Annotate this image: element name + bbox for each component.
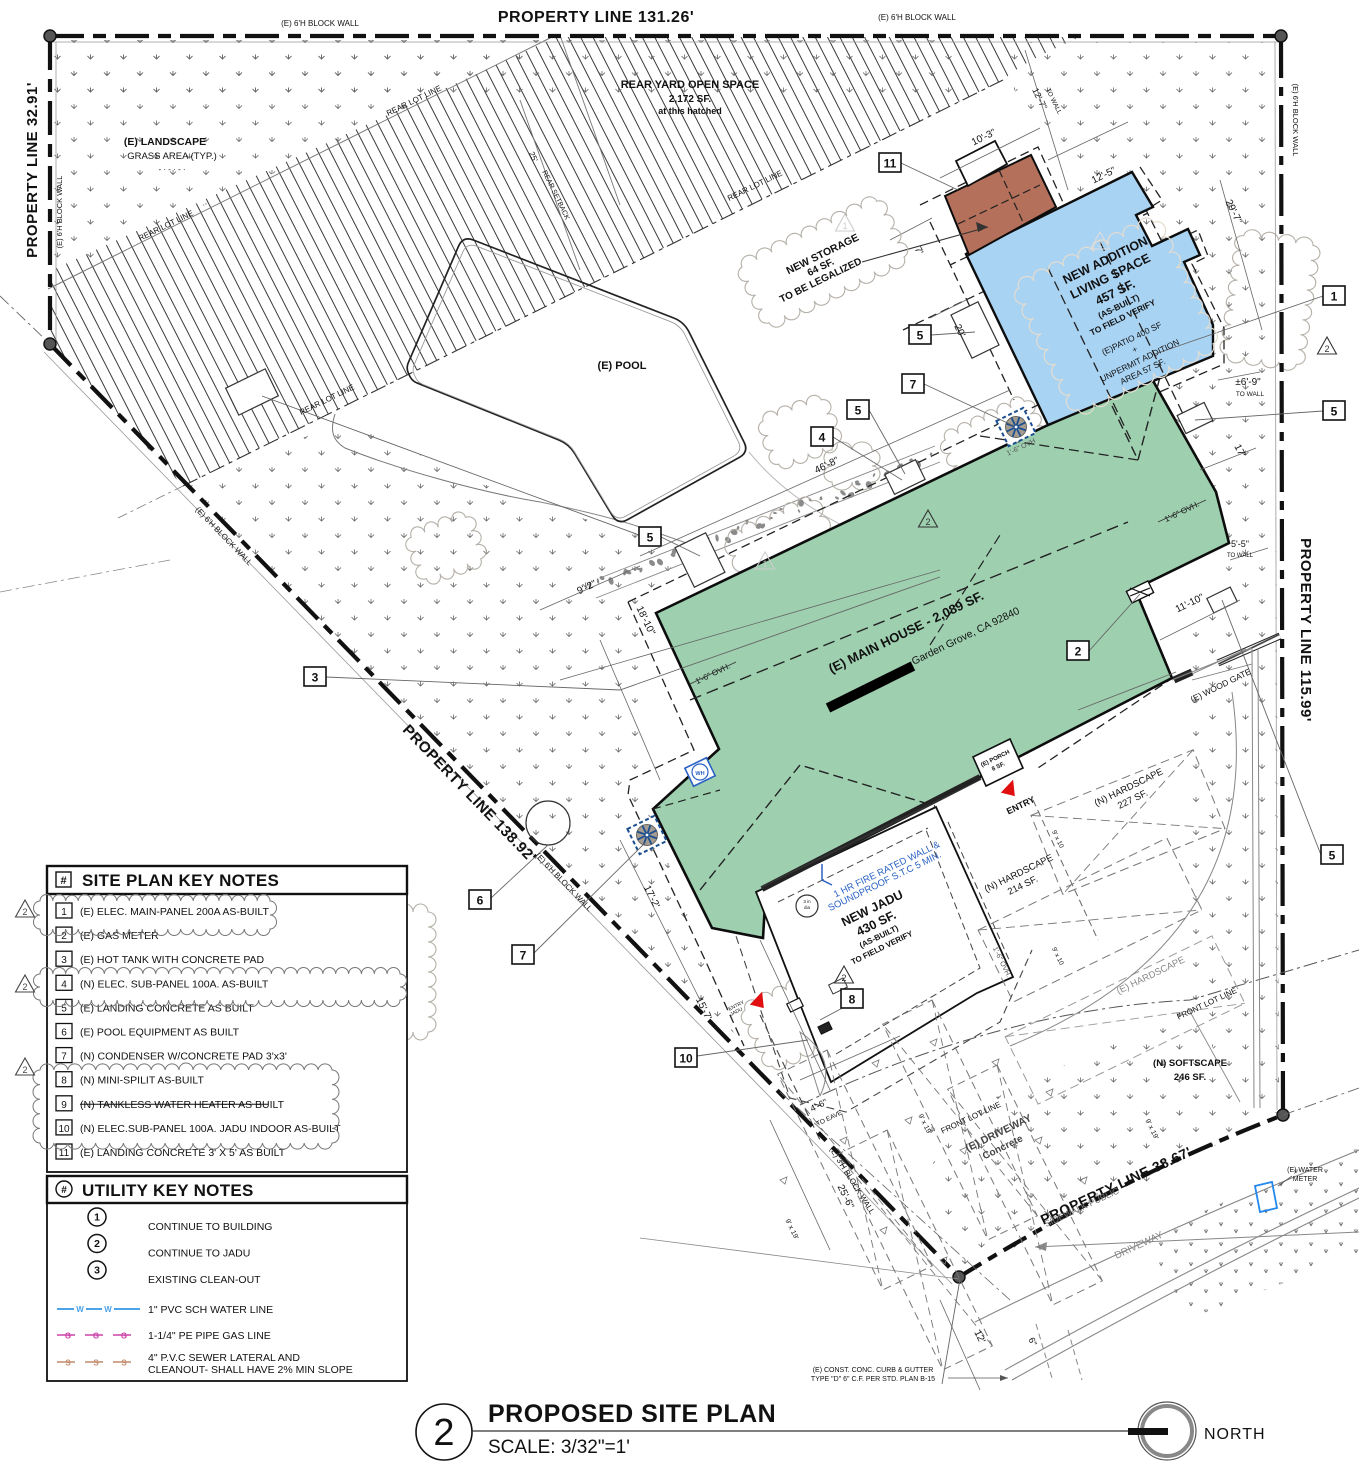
svg-text:1: 1 [842,221,847,231]
svg-text:WH: WH [695,771,704,777]
svg-text:10: 10 [679,1052,693,1066]
svg-text:2: 2 [22,982,27,992]
svg-text:UTILITY KEY NOTES: UTILITY KEY NOTES [82,1181,254,1200]
svg-text:5: 5 [917,329,924,343]
svg-text:at this hatched: at this hatched [658,106,722,116]
svg-text:2: 2 [94,1238,100,1250]
svg-text:2: 2 [22,1065,27,1075]
svg-text:G: G [65,1332,71,1341]
svg-text:(E) WATER: (E) WATER [1287,1167,1323,1174]
svg-text:10: 10 [58,1124,70,1135]
svg-text:(N) ELEC. SUB-PANEL 100A. AS-B: (N) ELEC. SUB-PANEL 100A. AS-BUILT [80,978,269,990]
svg-text:(E) LANDSCAPE: (E) LANDSCAPE [124,136,206,148]
svg-text:1" PVC SCH WATER LINE: 1" PVC SCH WATER LINE [148,1304,273,1316]
svg-text:SCALE: 3/32"=1': SCALE: 3/32"=1' [488,1437,630,1458]
svg-text:4: 4 [819,431,826,445]
svg-text:6: 6 [477,894,484,908]
svg-text:2: 2 [22,907,27,917]
svg-text:(N) ELEC.SUB-PANEL 100A. JADU: (N) ELEC.SUB-PANEL 100A. JADU INDOOR AS-… [80,1123,341,1135]
svg-text:2: 2 [841,973,846,983]
svg-text:- · - · - ·: - · - · - · [158,165,185,174]
svg-text:(N) MINI-SPILIT AS-BUILT: (N) MINI-SPILIT AS-BUILT [80,1075,204,1087]
svg-text:5'-5": 5'-5" [1231,539,1249,549]
svg-text:CONTINUE TO BUILDING: CONTINUE TO BUILDING [148,1221,272,1233]
svg-text:±6'-9": ±6'-9" [1235,377,1261,388]
svg-text:(E) POOL: (E) POOL [598,360,647,372]
svg-text:G: G [121,1332,127,1341]
svg-text:2: 2 [1324,344,1329,354]
svg-text:NORTH: NORTH [1204,1426,1266,1443]
svg-text:9: 9 [61,1100,67,1111]
svg-text:W: W [104,1305,112,1314]
svg-text:1: 1 [61,907,67,918]
svg-text:3: 3 [312,671,319,685]
svg-text:W: W [76,1305,84,1314]
svg-text:S: S [121,1359,127,1368]
svg-text:6: 6 [61,1028,67,1039]
svg-text:1: 1 [1331,290,1338,304]
svg-text:(E) 6'H BLOCK WALL: (E) 6'H BLOCK WALL [281,19,359,28]
svg-text:4: 4 [61,979,67,990]
svg-text:EXISTING CLEAN-OUT: EXISTING CLEAN-OUT [148,1274,261,1286]
svg-text:(E) HOT TANK WITH CONCRETE PAD: (E) HOT TANK WITH CONCRETE PAD [80,954,265,966]
svg-text:5: 5 [1331,405,1338,419]
svg-text:(E) 6'H BLOCK WALL: (E) 6'H BLOCK WALL [878,13,956,22]
svg-text:2: 2 [433,1412,454,1454]
svg-text:TO WALL: TO WALL [1227,553,1254,559]
svg-text:#: # [61,1185,67,1196]
svg-text:246 SF.: 246 SF. [1174,1072,1206,1083]
svg-text:(E) 6'H BLOCK WALL: (E) 6'H BLOCK WALL [55,176,64,249]
svg-text:CLEANOUT- SHALL HAVE 2% MIN SL: CLEANOUT- SHALL HAVE 2% MIN SLOPE [148,1364,353,1376]
svg-text:3 in: 3 in [803,899,811,904]
svg-text:1: 1 [94,1212,100,1224]
svg-text:2: 2 [925,517,930,527]
svg-text:1: 1 [762,559,767,569]
svg-text:8: 8 [61,1076,67,1087]
svg-text:G: G [93,1332,99,1341]
svg-text:SITE PLAN KEY NOTES: SITE PLAN KEY NOTES [82,871,279,890]
svg-text:S: S [93,1359,99,1368]
svg-text:7: 7 [520,949,527,963]
svg-text:PROPERTY LINE 115.99': PROPERTY LINE 115.99' [1297,538,1314,722]
svg-text:2: 2 [1075,645,1082,659]
svg-text:GRASS AREA (TYP.): GRASS AREA (TYP.) [127,151,217,162]
svg-text:(E) CONST. CONC. CURB & GUTTER: (E) CONST. CONC. CURB & GUTTER [813,1367,934,1374]
svg-text:PROPOSED SITE PLAN: PROPOSED SITE PLAN [488,1400,776,1428]
svg-text:8: 8 [849,993,856,1007]
svg-text:PROPERTY LINE 131.26': PROPERTY LINE 131.26' [498,9,694,26]
svg-text:2,172 SF.: 2,172 SF. [669,94,711,105]
svg-text:REAR YARD OPEN SPACE: REAR YARD OPEN SPACE [621,79,760,91]
svg-text:(N) CONDENSER W/CONCRETE PAD 3: (N) CONDENSER W/CONCRETE PAD 3'x3' [80,1051,287,1063]
svg-text:5: 5 [855,404,862,418]
svg-text:11: 11 [884,157,897,171]
svg-text:METER: METER [1293,1176,1318,1183]
svg-text:7: 7 [910,378,917,392]
svg-text:(E) 6'H BLOCK WALL: (E) 6'H BLOCK WALL [1291,84,1300,157]
svg-text:(E) POOL EQUIPMENT AS BUILT: (E) POOL EQUIPMENT AS BUILT [80,1027,240,1039]
svg-text:#: # [60,875,66,887]
svg-text:TYPE "D" 6" C.F. PER STD. PLAN: TYPE "D" 6" C.F. PER STD. PLAN B-15 [811,1376,935,1383]
svg-text:PROPERTY LINE 32.91': PROPERTY LINE 32.91' [24,82,41,258]
svg-text:5: 5 [647,531,654,545]
svg-text:CONTINUE TO JADU: CONTINUE TO JADU [148,1248,250,1260]
svg-text:(N) SOFTSCAPE: (N) SOFTSCAPE [1153,1058,1227,1069]
svg-text:5: 5 [1329,849,1336,863]
svg-text:3: 3 [94,1265,100,1277]
svg-text:5: 5 [61,1003,67,1014]
svg-text:4" P.V.C SEWER LATERAL AND: 4" P.V.C SEWER LATERAL AND [148,1352,300,1364]
svg-text:3: 3 [61,955,67,966]
svg-text:S: S [65,1359,71,1368]
svg-text:TO WALL: TO WALL [1236,391,1265,398]
svg-text:(E) ELEC. MAIN-PANEL 200A AS-B: (E) ELEC. MAIN-PANEL 200A AS-BUILT [80,906,269,918]
svg-text:dia: dia [804,905,811,910]
svg-text:7: 7 [61,1052,67,1063]
svg-text:1-1/4" PE PIPE GAS LINE: 1-1/4" PE PIPE GAS LINE [148,1330,271,1342]
